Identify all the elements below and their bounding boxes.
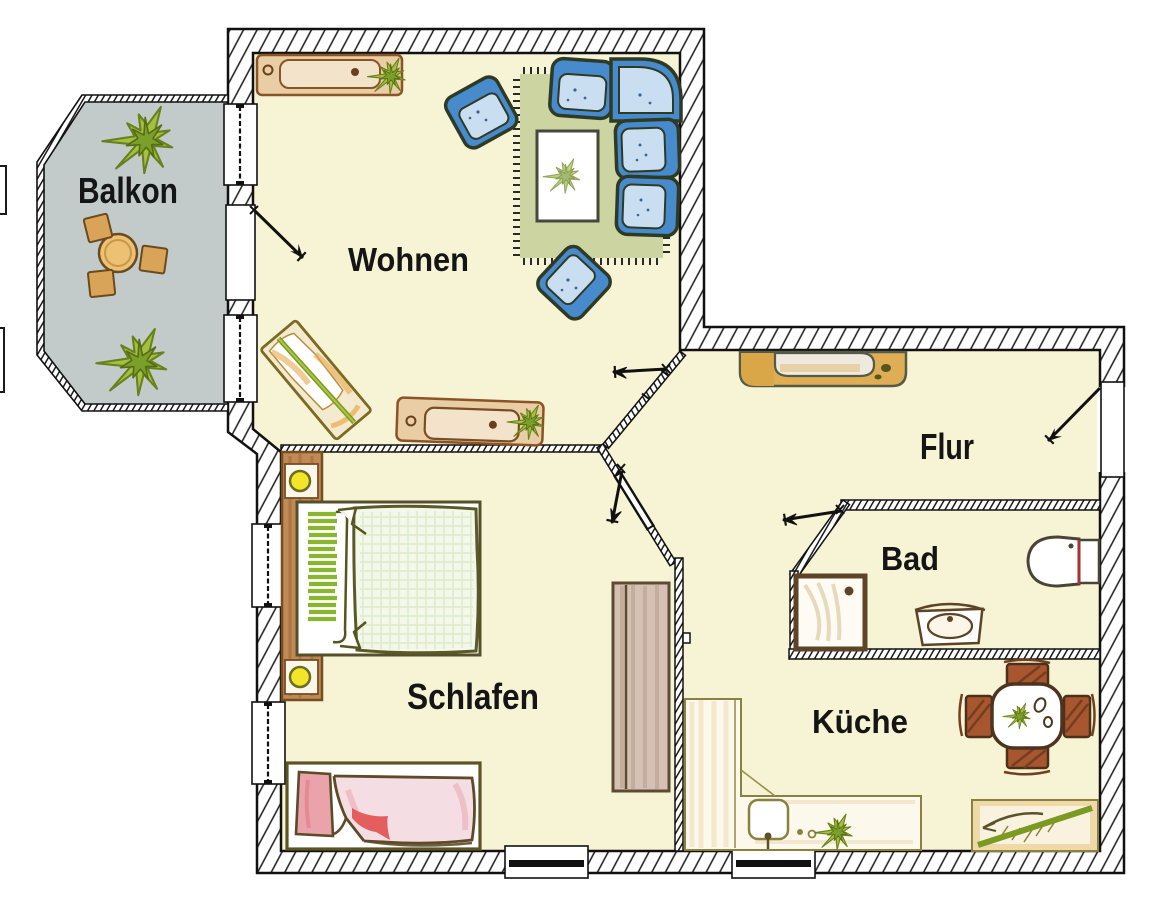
svg-text:Wohnen: Wohnen [348,241,469,278]
svg-text:Flur: Flur [920,426,974,467]
svg-text:Schlafen: Schlafen [407,676,539,717]
svg-text:Küche: Küche [812,703,908,740]
svg-text:Balkon: Balkon [78,170,178,211]
svg-text:Bad: Bad [881,540,939,577]
